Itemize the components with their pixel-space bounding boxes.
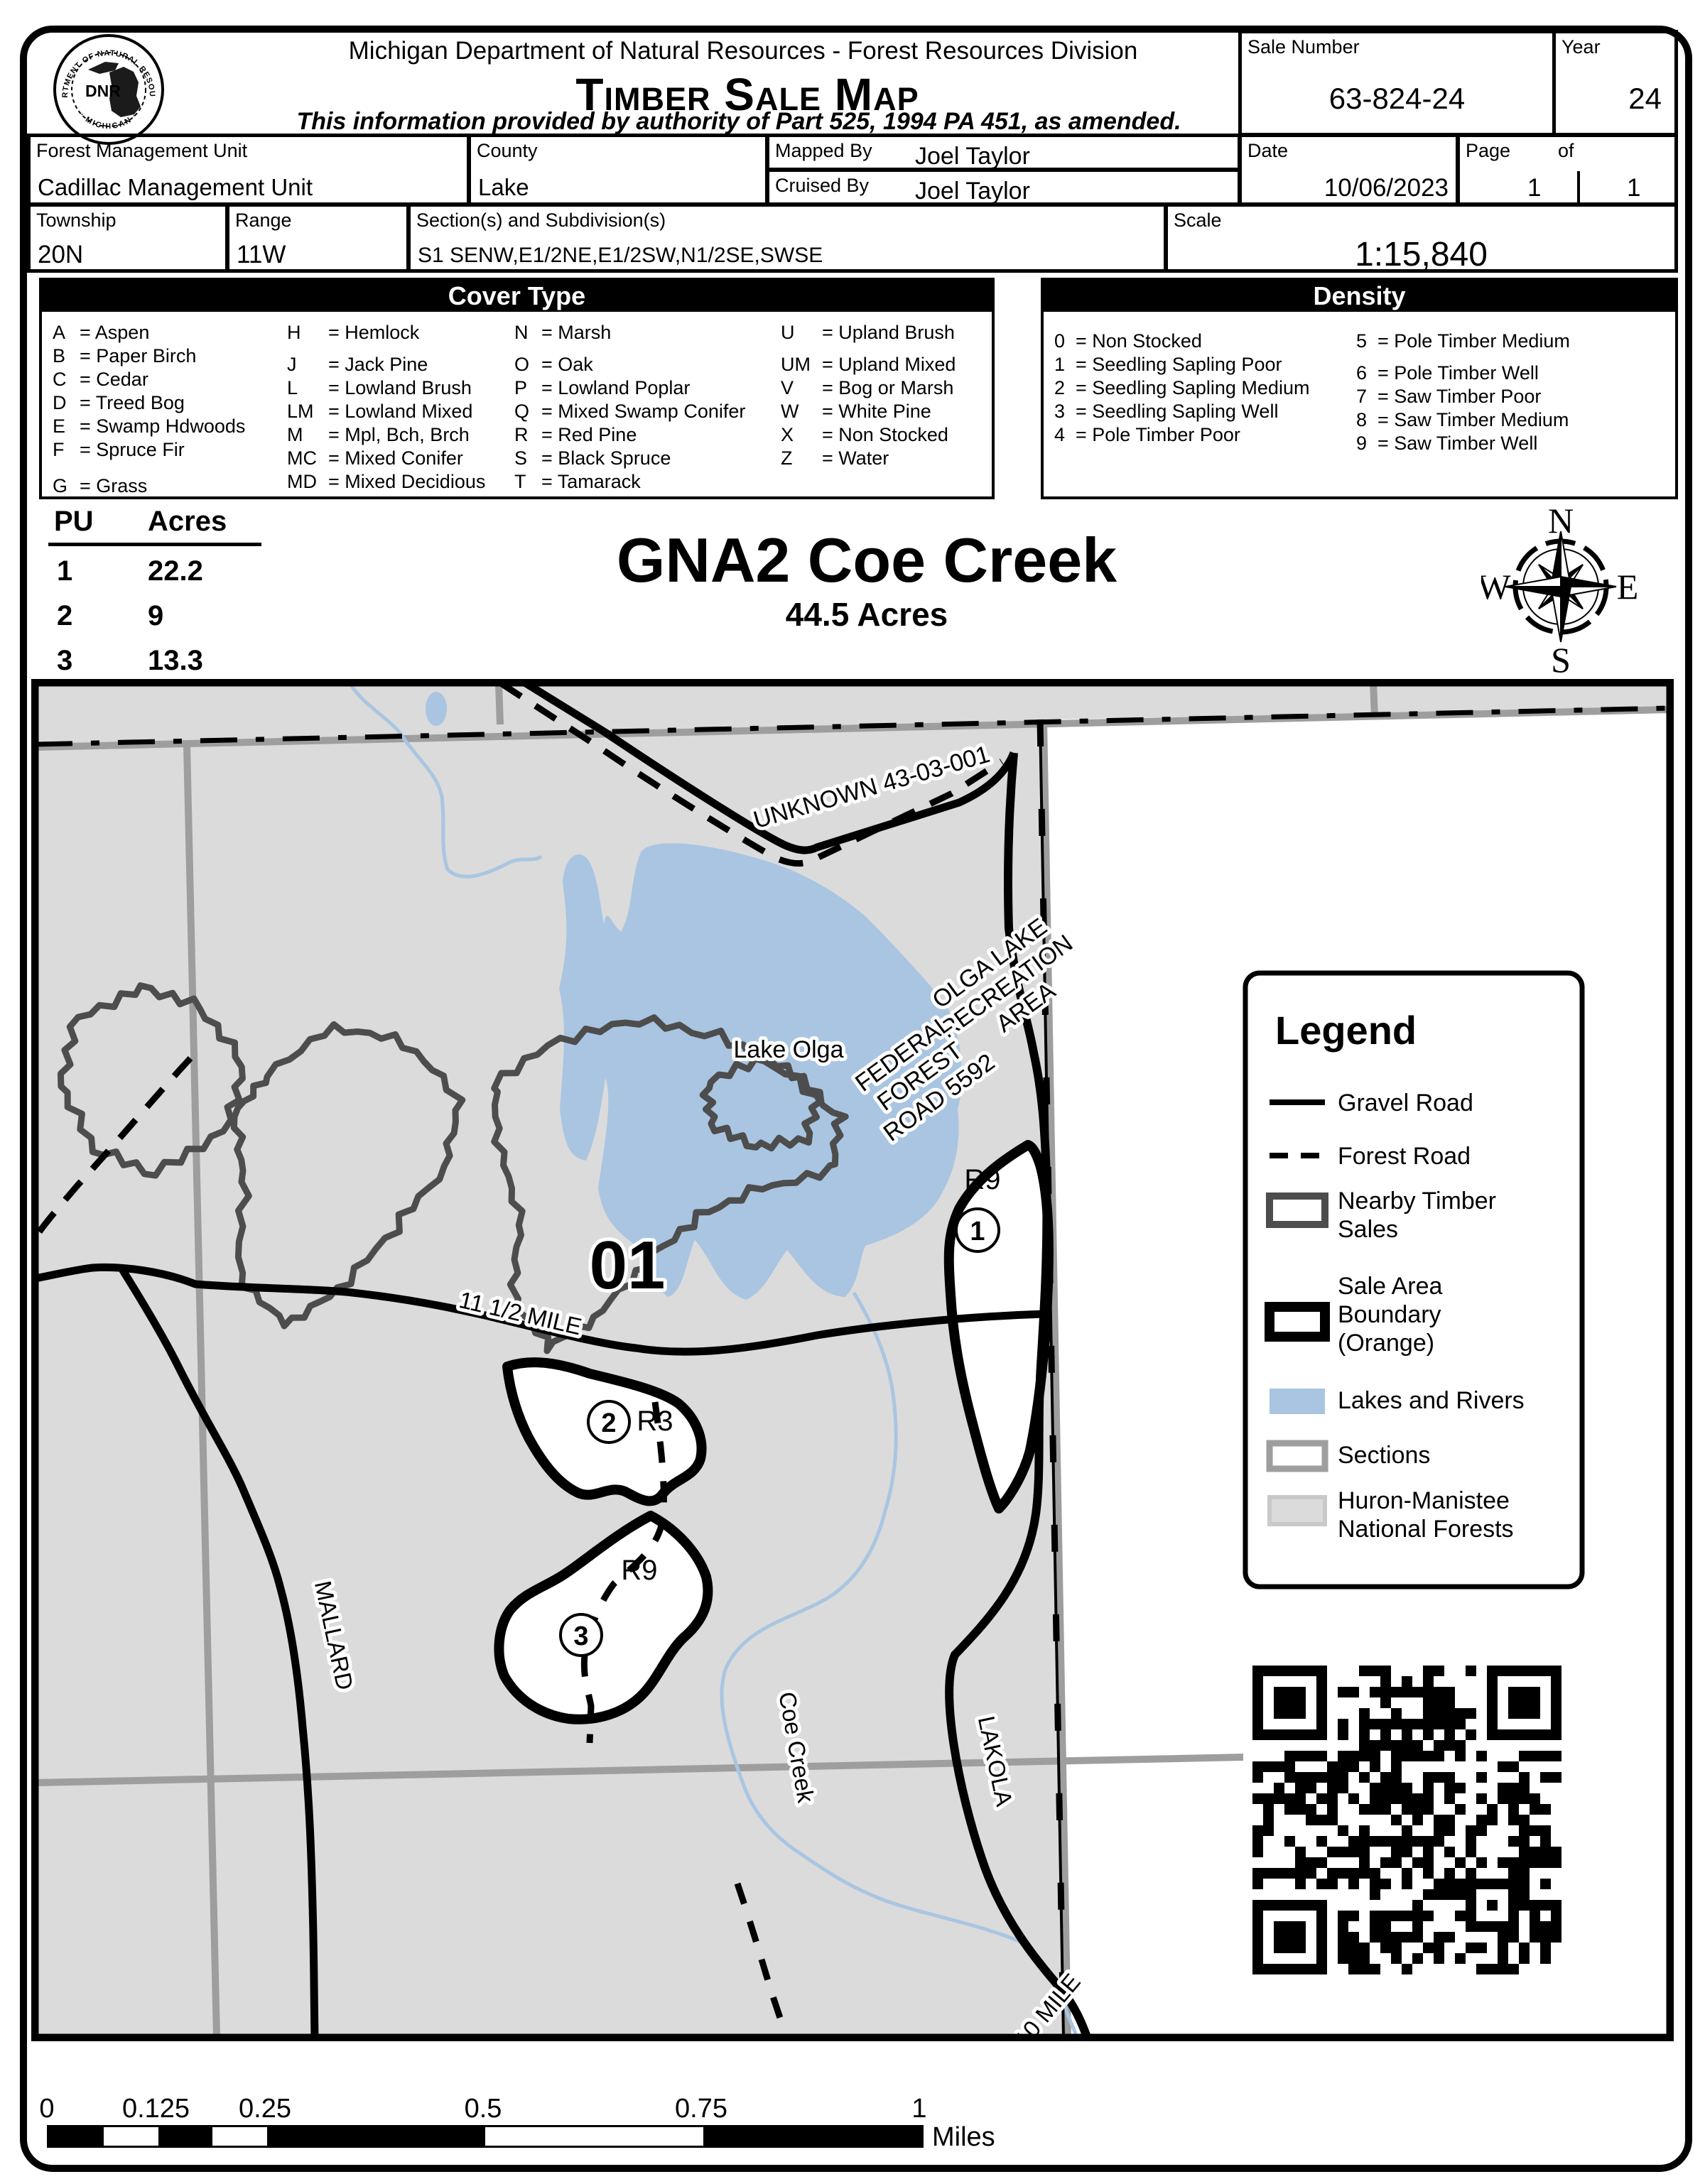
county-box: County Lake	[467, 134, 769, 206]
cover-code-item: 8= Saw Timber Medium	[1356, 409, 1569, 431]
range-box: Range 11W	[226, 203, 410, 273]
township-box: Township 20N	[27, 203, 229, 273]
cover-code-item: Z= Water	[781, 447, 889, 469]
scale-tick-label: 0.75	[675, 2094, 727, 2124]
compass-west-label: W	[1481, 567, 1511, 607]
timber-sale-map: UNKNOWN 43-03-001 Lake Olga OLGA LAKE RE…	[31, 679, 1674, 2041]
compass-rose: N S W E	[1481, 496, 1645, 680]
cruised-by-value: Joel Taylor	[915, 178, 1030, 205]
dnr-logo: DEPARTMENT OF NATURAL RESOURCES · MICHIG…	[41, 28, 176, 151]
fmu-value: Cadillac Management Unit	[38, 174, 313, 201]
pu-row-2-id: 2	[57, 600, 72, 632]
county-value: Lake	[478, 174, 529, 201]
huron-icon	[1270, 1497, 1325, 1524]
authority-line: This information provided by authority o…	[296, 108, 1181, 136]
date-value: 10/06/2023	[1324, 174, 1449, 202]
cover-code-item: 5= Pole Timber Medium	[1356, 330, 1570, 352]
cover-code-item: MD= Mixed Decidious	[287, 471, 485, 493]
scale-bar-unit: Miles	[932, 2122, 995, 2153]
scale-tick-label: 0.25	[239, 2094, 291, 2124]
unit-1-stand-label: R9	[964, 1164, 1000, 1195]
cover-code-item: 0= Non Stocked	[1054, 330, 1202, 352]
sale-number-box: Sale Number 63-824-24	[1238, 30, 1556, 136]
small-pond	[426, 692, 447, 726]
lakes-icon	[1270, 1389, 1325, 1414]
township-label: Township	[36, 210, 117, 232]
agency-title: Michigan Department of Natural Resources…	[349, 37, 1138, 65]
scale-value: 1:15,840	[1168, 235, 1674, 274]
legend-sale-label-3: (Orange)	[1338, 1330, 1434, 1357]
pu-header: PU	[54, 506, 94, 538]
unit-1-number: 1	[970, 1217, 985, 1246]
legend-huron-label-2: National Forests	[1338, 1516, 1514, 1543]
date-box: Date 10/06/2023	[1238, 134, 1459, 206]
cover-code-item: S= Black Spruce	[514, 447, 671, 469]
unit-2-number: 2	[601, 1408, 616, 1438]
cover-code-item: B= Paper Birch	[53, 345, 196, 367]
cover-code-item: M= Mpl, Bch, Brch	[287, 424, 470, 446]
logo-acronym: DNR	[85, 82, 121, 100]
pu-acres-table: PU Acres 1 22.2 2 9 3 13.3	[48, 506, 276, 669]
pu-row-3-acres: 13.3	[148, 645, 203, 677]
page-divider	[1577, 171, 1580, 204]
pu-row-3-id: 3	[57, 645, 72, 677]
lake-olga-label: Lake Olga	[734, 1036, 844, 1063]
cover-code-item: F= Spruce Fir	[53, 439, 185, 461]
cover-code-item: U= Upland Brush	[781, 322, 955, 344]
scale-bar-segment	[49, 2127, 104, 2146]
scale-tick-label: 0	[39, 2094, 54, 2124]
cover-code-item: T= Tamarack	[514, 471, 641, 493]
cover-code-item: MC= Mixed Conifer	[287, 447, 463, 469]
cover-code-item: 1= Seedling Sapling Poor	[1054, 354, 1282, 376]
legend-lakes-label: Lakes and Rivers	[1338, 1387, 1525, 1414]
fmu-label: Forest Management Unit	[36, 140, 247, 162]
page-box: Page of 1 1	[1456, 134, 1678, 206]
cover-code-item: LM= Lowland Mixed	[287, 401, 472, 423]
density-panel: Density 0= Non Stocked1= Seedling Saplin…	[1041, 278, 1678, 499]
range-value: 11W	[237, 241, 286, 269]
pu-row-2-acres: 9	[148, 600, 163, 632]
sections-value: S1 SENW,E1/2NE,E1/2SW,N1/2SE,SWSE	[418, 244, 823, 268]
sections-box: Section(s) and Subdivision(s) S1 SENW,E1…	[407, 203, 1167, 273]
legend-nearby-label-1: Nearby Timber	[1338, 1188, 1496, 1215]
page-of-label: of	[1558, 140, 1574, 162]
scale-bar-segment	[703, 2127, 921, 2146]
year-box: Year 24	[1552, 30, 1678, 136]
cover-type-panel: Cover Type A= AspenB= Paper BirchC= Ceda…	[39, 278, 995, 499]
cover-code-item: H= Hemlock	[287, 322, 419, 344]
cover-code-item: J= Jack Pine	[287, 354, 428, 376]
unit-3-number: 3	[573, 1621, 588, 1651]
cover-code-item: C= Cedar	[53, 369, 148, 391]
date-label: Date	[1247, 140, 1288, 162]
cover-code-item: 2= Seedling Sapling Medium	[1054, 377, 1309, 399]
mapped-by-value: Joel Taylor	[915, 143, 1030, 170]
cover-code-item: A= Aspen	[53, 322, 149, 344]
cover-code-item: D= Treed Bog	[53, 392, 185, 414]
cover-code-item: P= Lowland Poplar	[514, 377, 690, 399]
cover-code-item: 6= Pole Timber Well	[1356, 362, 1539, 384]
scale-bar-segment	[267, 2127, 485, 2146]
sale-name-title: GNA2 Coe Creek	[617, 524, 1117, 597]
compass-east-label: E	[1617, 567, 1639, 607]
sections-label: Section(s) and Subdivision(s)	[416, 210, 666, 232]
sale-number-value: 63-824-24	[1242, 82, 1552, 116]
sale-boundary-icon	[1270, 1307, 1325, 1337]
page-value: 1	[1527, 174, 1541, 202]
page-label: Page	[1466, 140, 1510, 162]
legend-sections-label: Sections	[1338, 1442, 1430, 1469]
cruised-by-box: Cruised By Joel Taylor	[766, 168, 1241, 206]
year-label: Year	[1561, 36, 1601, 58]
fmu-box: Forest Management Unit Cadillac Manageme…	[27, 134, 470, 206]
year-value: 24	[1628, 82, 1662, 116]
scale-box: Scale 1:15,840	[1164, 203, 1678, 273]
scale-bar-segment	[158, 2127, 213, 2146]
cruised-by-label: Cruised By	[775, 175, 869, 197]
legend-nearby-label-2: Sales	[1338, 1216, 1398, 1243]
compass-north-label: N	[1548, 501, 1574, 540]
legend-title: Legend	[1275, 1008, 1417, 1053]
unit-3-stand-label: R9	[621, 1555, 657, 1586]
page-of-value: 1	[1627, 174, 1640, 202]
cover-code-item: 3= Seedling Sapling Well	[1054, 401, 1278, 423]
scale-bar-segments	[47, 2125, 924, 2148]
compartment-label: 01	[590, 1227, 666, 1303]
pu-underline	[48, 543, 261, 546]
sale-number-label: Sale Number	[1247, 36, 1360, 58]
cover-code-item: W= White Pine	[781, 401, 931, 423]
county-label: County	[477, 140, 538, 162]
cover-code-item: O= Oak	[514, 354, 593, 376]
cover-type-title: Cover Type	[42, 281, 992, 312]
scale-bar-segment	[212, 2127, 267, 2146]
mapped-by-box: Mapped By Joel Taylor	[766, 134, 1241, 171]
range-label: Range	[235, 210, 292, 232]
scale-tick-label: 1	[911, 2094, 926, 2124]
cover-code-item: 7= Saw Timber Poor	[1356, 386, 1541, 408]
cover-code-item: E= Swamp Hdwoods	[53, 415, 245, 438]
cover-code-item: L= Lowland Brush	[287, 377, 472, 399]
scale-label: Scale	[1174, 210, 1222, 232]
legend-gravel-label: Gravel Road	[1338, 1090, 1473, 1117]
map-legend: Legend Gravel Road Forest Road Nearby Ti…	[1245, 973, 1582, 1587]
legend-forest-label: Forest Road	[1338, 1143, 1471, 1170]
pu-row-1-id: 1	[57, 555, 72, 587]
cover-code-item: Q= Mixed Swamp Conifer	[514, 401, 745, 423]
legend-sale-label-2: Boundary	[1338, 1301, 1441, 1328]
cover-code-item: V= Bog or Marsh	[781, 377, 953, 399]
compass-south-label: S	[1551, 640, 1571, 680]
cover-code-item: N= Marsh	[514, 322, 611, 344]
density-title: Density	[1044, 281, 1675, 312]
scale-bar-segment	[104, 2127, 158, 2146]
sections-icon	[1270, 1443, 1325, 1469]
scale-tick-label: 0.5	[465, 2094, 502, 2124]
legend-huron-label-1: Huron-Manistee	[1338, 1487, 1510, 1514]
scale-bar-segment	[485, 2127, 703, 2146]
cover-code-item: UM= Upland Mixed	[781, 354, 956, 376]
sale-acres-subtitle: 44.5 Acres	[786, 595, 948, 634]
cover-code-item: 4= Pole Timber Poor	[1054, 424, 1240, 446]
nearby-sales-icon	[1270, 1196, 1325, 1224]
township-value: 20N	[38, 241, 83, 269]
cover-code-item: X= Non Stocked	[781, 424, 948, 446]
acres-header: Acres	[148, 506, 227, 538]
cover-code-item: 9= Saw Timber Well	[1356, 433, 1537, 455]
pu-row-1-acres: 22.2	[148, 555, 203, 587]
mapped-by-label: Mapped By	[775, 140, 872, 162]
cover-code-item: R= Red Pine	[514, 424, 637, 446]
unit-2-stand-label: R3	[637, 1406, 673, 1437]
scale-tick-label: 0.125	[122, 2094, 190, 2124]
map-scale-bar: 00.1250.250.50.751 Miles	[31, 2088, 1097, 2159]
cover-code-item: G= Grass	[53, 475, 147, 497]
legend-sale-label-1: Sale Area	[1338, 1273, 1443, 1300]
